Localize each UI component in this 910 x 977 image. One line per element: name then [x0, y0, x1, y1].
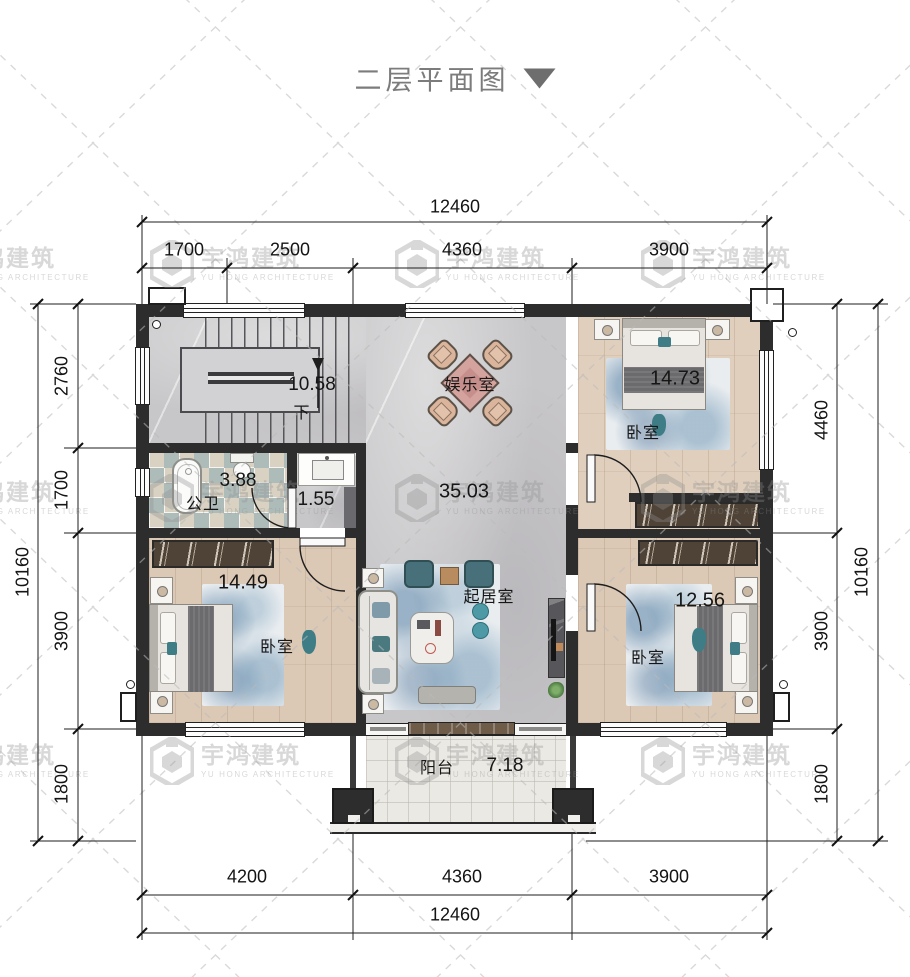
armchair: [404, 560, 434, 588]
bathroom-area: 3.88: [220, 470, 257, 492]
dim-bottom-seg: 4360: [442, 867, 482, 888]
stairwell-down-label: 下: [293, 399, 310, 423]
dim-top-seg: 2500: [270, 240, 310, 261]
hall-wardrobe: [635, 502, 760, 528]
drain-box-bottom-left: [120, 692, 137, 722]
window-left-bath: [135, 468, 150, 497]
bedroom-br-label: 卧室: [631, 644, 665, 668]
balcony-column-left: [332, 788, 374, 824]
yuhong-logo-icon: [641, 737, 685, 785]
stair-handrail: [208, 372, 294, 384]
balcony-column-right: [552, 788, 594, 824]
living-room-label: 起居室: [463, 583, 514, 607]
dim-left-seg: 1800: [52, 764, 73, 804]
bedroom-br-wardrobe: [638, 540, 758, 566]
sofa: [358, 590, 398, 694]
tv-wall-panel: [548, 598, 565, 678]
bed-bottom-left: [149, 604, 233, 692]
bed-headboard: [623, 319, 705, 328]
nightstand: [735, 577, 758, 604]
window-top-stair: [183, 303, 305, 318]
yuhong-logo-icon: [395, 240, 439, 288]
drain-box-top-right: [750, 288, 784, 322]
bed-bottom-right: [674, 604, 758, 692]
dim-bottom-seg: 3900: [649, 867, 689, 888]
dim-right-overall: 10160: [852, 547, 873, 597]
wall-stair-bath: [136, 443, 366, 453]
drain-pipe-bottom-left: [126, 680, 135, 689]
bed-headboard: [150, 605, 158, 691]
wall-bedroom-bl-top: [136, 528, 300, 538]
dim-left-overall: 10160: [13, 547, 34, 597]
window-bottom-bedroom-br: [600, 722, 727, 737]
wall-living-right-stub: [566, 443, 578, 453]
watermark: 宇鸿建筑YU HONG ARCHITECTURE: [150, 737, 335, 785]
bedroom-bl-decor: [302, 630, 316, 654]
pouf: [472, 622, 489, 639]
watermark: 宇鸿建筑YU HONG ARCHITECTURE: [0, 737, 90, 785]
washbasin-dark-strip: [344, 487, 356, 528]
stairwell-area: 10.58: [288, 374, 336, 396]
bathroom-label: 公卫: [186, 490, 220, 514]
drain-pipe-bottom-right: [779, 680, 788, 689]
washbasin-counter: [298, 453, 355, 486]
dim-top-seg: 1700: [164, 240, 204, 261]
bed-pillow: [731, 612, 747, 644]
dropdown-triangle-icon: [524, 68, 556, 88]
wall-living-right-low: [566, 631, 578, 736]
drain-box-bottom-right: [773, 692, 790, 722]
hall-area: 35.03: [439, 481, 489, 504]
dim-left-seg: 2760: [52, 356, 73, 396]
drawing-title[interactable]: 二层平面图: [355, 59, 556, 98]
window-top-hall: [405, 303, 525, 318]
watermark: 宇鸿建筑YU HONG ARCHITECTURE: [395, 240, 580, 288]
page-title: 二层平面图: [355, 59, 510, 98]
dim-bottom-overall: 12460: [430, 905, 480, 926]
watermark: 宇鸿建筑YU HONG ARCHITECTURE: [641, 737, 826, 785]
watermark: 宇鸿建筑YU HONG ARCHITECTURE: [0, 240, 90, 288]
bedroom-br-area: 12.56: [675, 590, 725, 613]
bed-top-right: [622, 318, 706, 410]
bed-accent-pillow: [730, 642, 740, 655]
entertainment-room-label: 娱乐室: [444, 371, 495, 395]
coffee-table: [410, 612, 454, 664]
sliding-door-panel-left: [370, 727, 406, 731]
floorplan-sheet: 二层平面图: [0, 0, 910, 977]
balcony-area: 7.18: [487, 755, 524, 777]
bedroom-br-decor: [692, 628, 706, 652]
window-right-bedroom: [759, 350, 774, 470]
bed-pillow: [160, 612, 176, 644]
dim-right-seg: 4460: [812, 400, 833, 440]
bedroom-bl-label: 卧室: [260, 633, 294, 657]
bedroom-bl-bookshelf: [152, 540, 274, 568]
balcony-door-cabinet: [408, 722, 515, 735]
window-bottom-bedroom-bl: [185, 722, 305, 737]
bedroom-bl-area: 14.49: [218, 572, 268, 595]
drain-pipe-top-left: [152, 320, 161, 329]
wall-bath-basin: [287, 443, 297, 488]
dim-top-seg: 3900: [649, 240, 689, 261]
wall-living-right-mid: [566, 505, 578, 575]
bed-accent-pillow: [167, 642, 177, 655]
drain-box-top-left: [148, 287, 186, 305]
wall-bedroom-bl-top-stub: [345, 528, 366, 538]
nightstand: [594, 319, 620, 340]
sofa-side-table: [362, 568, 384, 588]
dim-right-seg: 3900: [812, 611, 833, 651]
balcony-label: 阳台: [420, 754, 454, 778]
bedroom-tr-label: 卧室: [626, 419, 660, 443]
bed-pillow: [668, 330, 700, 346]
wall-basin-hall: [356, 443, 366, 538]
yuhong-logo-icon: [150, 737, 194, 785]
drain-pipe-top-right: [788, 328, 797, 337]
dim-left-seg: 3900: [52, 611, 73, 651]
nightstand: [704, 319, 730, 340]
tv-bench: [418, 686, 476, 704]
dim-top-seg: 4360: [442, 240, 482, 261]
plant: [548, 682, 564, 698]
dim-left-seg: 1700: [52, 470, 73, 510]
bed-pillow: [731, 652, 747, 684]
dim-top-overall: 12460: [430, 197, 480, 218]
bed-blanket: [188, 606, 214, 692]
wall-bedroom-tr-bottom: [629, 493, 773, 502]
window-left-stair: [135, 347, 150, 405]
bed-pillow: [160, 652, 176, 684]
washbasin-area: 1.55: [298, 489, 335, 511]
bedroom-tr-area: 14.73: [650, 368, 700, 391]
dim-right-seg: 1800: [812, 764, 833, 804]
watermark: 宇鸿建筑YU HONG ARCHITECTURE: [0, 474, 90, 522]
balcony-floor: [366, 736, 566, 824]
sofa-side-table: [362, 694, 384, 714]
wall-bedroom-br-top: [566, 529, 773, 538]
bed-headboard: [749, 605, 757, 691]
dim-bottom-seg: 4200: [227, 867, 267, 888]
sliding-door-panel-right: [519, 727, 562, 731]
bed-accent-pillow: [658, 337, 671, 347]
nightstand: [150, 577, 173, 604]
armchair-table: [440, 567, 459, 585]
